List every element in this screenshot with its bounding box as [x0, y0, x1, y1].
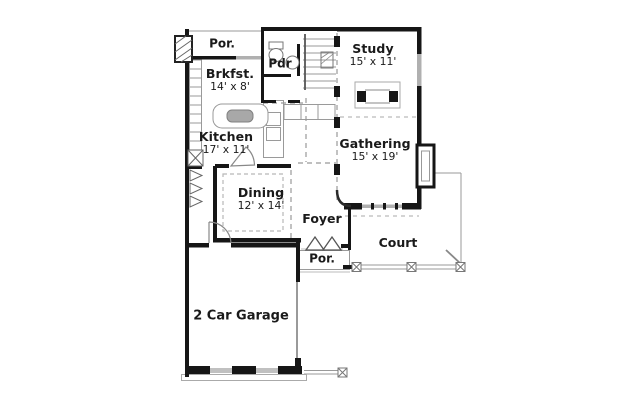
gathering-name: Gathering [339, 137, 410, 151]
label-porch-top: Por. [209, 37, 235, 50]
study-desk [355, 82, 400, 108]
label-front-porch: Por. [309, 252, 335, 265]
label-garage: 2 Car Garage [193, 310, 289, 325]
label-study: Study 15' x 11' [350, 42, 397, 68]
label-foyer: Foyer [302, 212, 341, 226]
staircase [303, 34, 336, 90]
label-breakfast: Brkfst. 14' x 8' [206, 67, 254, 93]
fence-markers [338, 263, 465, 378]
chimney [175, 36, 192, 62]
floor-plan: Por. Brkfst. 14' x 8' Pdr Study 15' x 11… [0, 0, 620, 415]
court-gate [446, 250, 461, 264]
gathering-dims: 15' x 19' [339, 151, 410, 163]
label-dining: Dining 12' x 14' [238, 186, 285, 212]
dining-name: Dining [238, 186, 285, 200]
label-powder: Pdr [268, 57, 291, 70]
label-gathering: Gathering 15' x 19' [339, 137, 410, 163]
kitchen-island [213, 104, 268, 128]
garage-apron [182, 375, 307, 381]
dining-dims: 12' x 14' [238, 200, 285, 212]
study-name: Study [350, 42, 397, 56]
label-kitchen: Kitchen 17' x 11' [199, 130, 253, 156]
pantry-shelves [190, 170, 202, 207]
garage-fence [304, 371, 338, 375]
court-fence [352, 173, 461, 269]
label-court: Court [379, 236, 418, 250]
floor-plan-linework [0, 0, 620, 415]
breakfast-name: Brkfst. [206, 67, 254, 81]
toilet-icon [269, 42, 283, 49]
breakfast-dims: 14' x 8' [206, 81, 254, 93]
kitchen-dims: 17' x 11' [199, 144, 253, 156]
study-dims: 15' x 11' [350, 56, 397, 68]
fireplace [417, 145, 434, 187]
kitchen-counter [264, 101, 336, 158]
front-double-door [306, 237, 341, 250]
kitchen-name: Kitchen [199, 130, 253, 144]
